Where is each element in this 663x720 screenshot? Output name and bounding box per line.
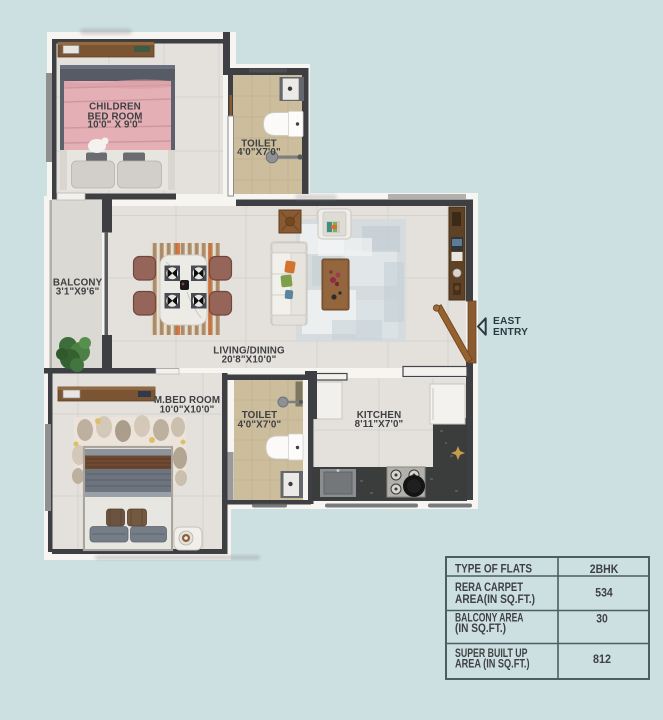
svg-text:EAST: EAST [493, 316, 522, 327]
svg-text:20'8"X10'0": 20'8"X10'0" [222, 355, 277, 366]
svg-text:TYPE OF FLATS: TYPE OF FLATS [455, 561, 532, 575]
svg-text:4'0"X7'0": 4'0"X7'0" [238, 420, 282, 431]
svg-text:3'1"X9'6": 3'1"X9'6" [56, 287, 100, 298]
svg-text:8'11"X7'0": 8'11"X7'0" [355, 419, 404, 430]
svg-text:AREA (IN SQ.FT.): AREA (IN SQ.FT.) [455, 656, 530, 670]
svg-text:812: 812 [593, 652, 611, 666]
svg-text:4'0"X7'0": 4'0"X7'0" [237, 147, 281, 158]
svg-text:2BHK: 2BHK [590, 562, 619, 576]
svg-text:534: 534 [595, 586, 613, 600]
svg-text:ENTRY: ENTRY [493, 327, 528, 338]
svg-text:10'0"X10'0": 10'0"X10'0" [160, 405, 215, 416]
svg-text:AREA(IN SQ.FT.): AREA(IN SQ.FT.) [455, 592, 535, 606]
svg-text:10'0" X 9'0": 10'0" X 9'0" [88, 120, 143, 131]
svg-text:(IN SQ.FT.): (IN SQ.FT.) [455, 621, 506, 635]
svg-text:30: 30 [596, 612, 608, 626]
